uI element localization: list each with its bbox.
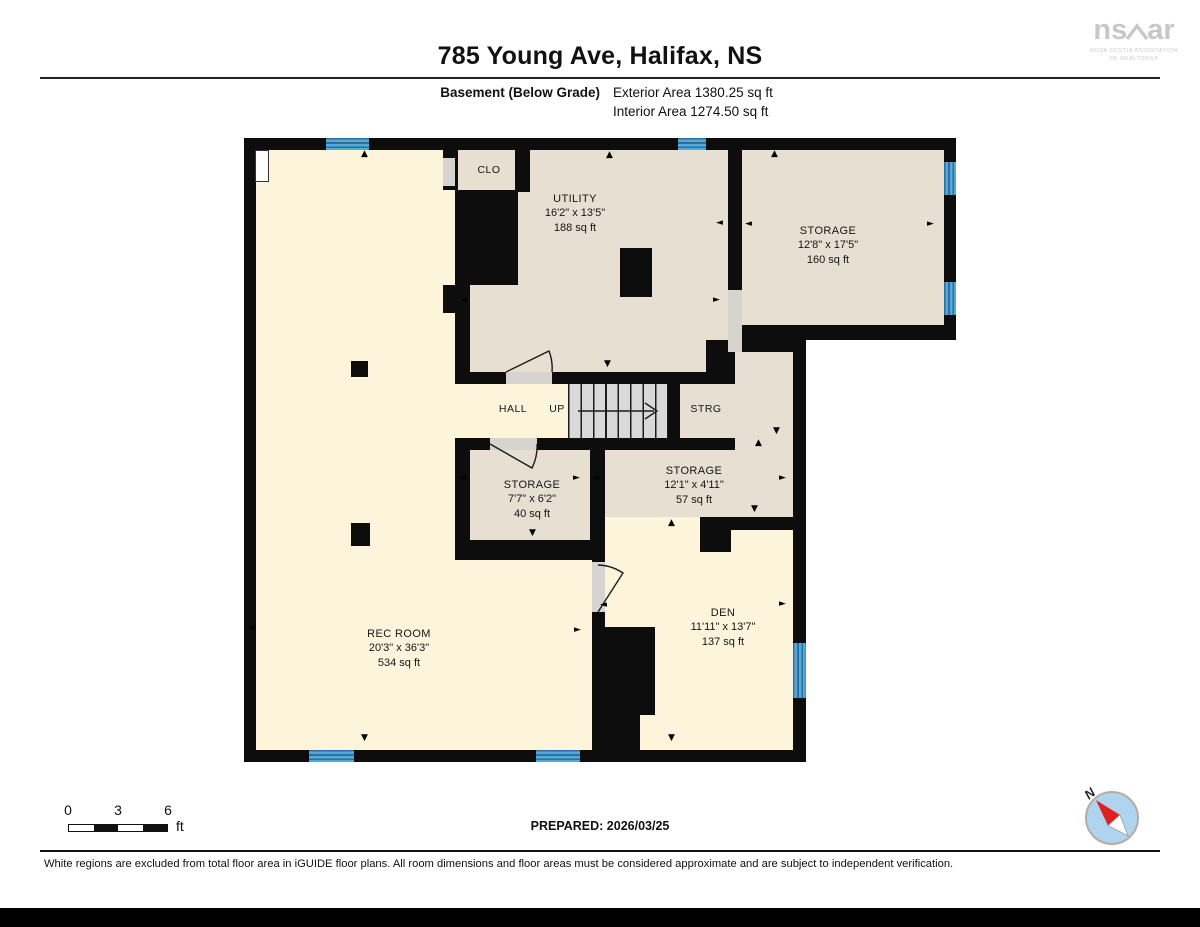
excluded-region	[255, 150, 269, 182]
window-marker	[309, 750, 354, 762]
room-label-storage-77: STORAGE 7'7" x 6'2" 40 sq ft	[467, 478, 597, 521]
room-area: 188 sq ft	[505, 221, 645, 235]
room-area: 137 sq ft	[658, 635, 788, 649]
floor-plan: ▲ ▲ ▲ ◄ ◄ ► ◄ ► ▼ ▼ ▲ ◄ ► ▼ ◄ ► ▼ ▲ ► ◄ …	[0, 0, 1200, 927]
entrance-arrow-icon: ▼	[361, 734, 368, 743]
entrance-arrow-icon: ◄	[459, 474, 466, 483]
entrance-arrow-icon: ▼	[773, 427, 780, 436]
room-dims: 16'2" x 13'5"	[505, 206, 645, 220]
window-marker	[793, 643, 806, 698]
entrance-arrow-icon: ▲	[606, 151, 613, 160]
entrance-arrow-icon: ►	[779, 474, 786, 483]
entrance-arrow-icon: ◄	[716, 219, 723, 228]
room-name: STORAGE	[758, 224, 898, 238]
room-area: 534 sq ft	[329, 656, 469, 670]
chimney-mass-lower	[592, 715, 640, 750]
window-marker	[944, 282, 956, 315]
room-name: UTILITY	[505, 192, 645, 206]
room-utility-left	[470, 285, 530, 372]
entrance-arrow-icon: ◄	[600, 601, 607, 610]
utility-block	[620, 248, 652, 297]
room-dims: 11'11" x 13'7"	[658, 620, 788, 634]
entrance-arrow-icon: ◄	[745, 220, 752, 229]
chimney-mass	[592, 627, 655, 715]
room-name: REC ROOM	[329, 627, 469, 641]
entrance-arrow-icon: ◄	[248, 624, 255, 633]
room-dims: 7'7" x 6'2"	[467, 492, 597, 506]
room-label-strg: STRG	[676, 403, 736, 415]
window-marker	[536, 750, 580, 762]
door-opening	[490, 438, 537, 450]
room-area: 40 sq ft	[467, 507, 597, 521]
room-label-hall: HALL	[483, 403, 543, 415]
room-label-utility: UTILITY 16'2" x 13'5" 188 sq ft	[505, 192, 645, 235]
room-area: 57 sq ft	[629, 493, 759, 507]
room-name: STORAGE	[467, 478, 597, 492]
room-label-storage-tr: STORAGE 12'8" x 17'5" 160 sq ft	[758, 224, 898, 267]
entrance-arrow-icon: ►	[713, 296, 720, 305]
room-dims: 20'3" x 36'3"	[329, 641, 469, 655]
room-label-rec-room: REC ROOM 20'3" x 36'3" 534 sq ft	[329, 627, 469, 670]
staircase	[568, 384, 668, 438]
entrance-arrow-icon: ▲	[361, 150, 368, 159]
room-name: STORAGE	[629, 464, 759, 478]
room-label-clo: CLO	[459, 164, 519, 176]
room-name: DEN	[658, 606, 788, 620]
prepared-date-label: PREPARED: 2026/03/25	[0, 819, 1200, 833]
entrance-arrow-icon: ▼	[529, 529, 536, 538]
den-top-opening	[605, 517, 700, 530]
bottom-bar	[0, 908, 1200, 927]
entrance-arrow-icon: ►	[574, 626, 581, 635]
wall-stub	[443, 285, 458, 313]
door-opening	[443, 158, 455, 186]
entrance-arrow-icon: ◄	[460, 296, 467, 305]
disclaimer-text: White regions are excluded from total fl…	[44, 858, 1154, 870]
room-label-den: DEN 11'11" x 13'7" 137 sq ft	[658, 606, 788, 649]
entrance-arrow-icon: ▲	[668, 519, 675, 528]
window-marker	[944, 162, 956, 195]
room-dims: 12'1" x 4'11"	[629, 478, 759, 492]
entrance-arrow-icon: ▼	[604, 360, 611, 369]
entrance-arrow-icon: ▲	[755, 439, 762, 448]
entrance-arrow-icon: ▼	[668, 734, 675, 743]
column-post	[351, 361, 368, 377]
scale-tick-6: 6	[158, 802, 178, 818]
room-dims: 12'8" x 17'5"	[758, 238, 898, 252]
column-post	[351, 523, 370, 546]
room-rec-room-lower	[455, 560, 592, 750]
window-marker	[678, 138, 706, 150]
entrance-arrow-icon: ►	[927, 220, 934, 229]
door-opening	[506, 372, 552, 384]
room-label-storage-121: STORAGE 12'1" x 4'11" 57 sq ft	[629, 464, 759, 507]
scale-tick-3: 3	[108, 802, 128, 818]
room-area: 160 sq ft	[758, 253, 898, 267]
scale-tick-0: 0	[58, 802, 78, 818]
door-opening	[728, 290, 742, 352]
room-label-up: UP	[537, 403, 577, 415]
entrance-arrow-icon: ▲	[771, 150, 778, 159]
den-wall-stub	[700, 517, 731, 552]
footer-divider	[40, 850, 1160, 852]
